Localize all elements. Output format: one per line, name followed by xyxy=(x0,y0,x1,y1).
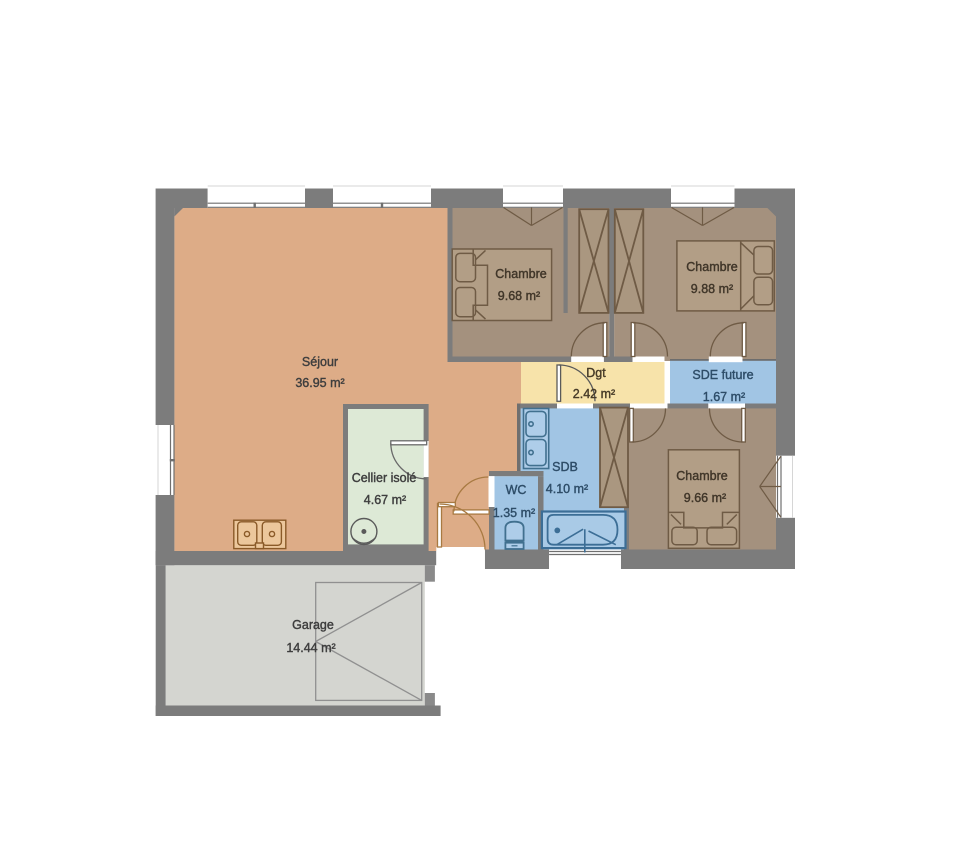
svg-text:4.67 m²: 4.67 m² xyxy=(364,493,406,507)
svg-text:1.35 m²: 1.35 m² xyxy=(493,506,535,520)
svg-text:14.44 m²: 14.44 m² xyxy=(286,641,335,655)
svg-text:SDE future: SDE future xyxy=(692,368,753,382)
svg-text:1.67 m²: 1.67 m² xyxy=(703,390,745,404)
svg-text:Cellier isolé: Cellier isolé xyxy=(352,471,417,485)
svg-text:WC: WC xyxy=(506,483,527,497)
svg-text:Chambre: Chambre xyxy=(686,260,737,274)
svg-text:4.10 m²: 4.10 m² xyxy=(546,482,588,496)
svg-text:Chambre: Chambre xyxy=(676,469,727,483)
svg-text:9.88 m²: 9.88 m² xyxy=(691,282,733,296)
svg-text:9.68 m²: 9.68 m² xyxy=(498,289,540,303)
svg-text:Garage: Garage xyxy=(292,618,334,632)
svg-text:Chambre: Chambre xyxy=(495,267,546,281)
svg-text:36.95 m²: 36.95 m² xyxy=(295,376,344,390)
svg-text:Dgt: Dgt xyxy=(586,366,606,380)
svg-text:2.42 m²: 2.42 m² xyxy=(573,387,615,401)
svg-text:9.66 m²: 9.66 m² xyxy=(684,491,726,505)
svg-text:Séjour: Séjour xyxy=(302,355,338,369)
svg-text:SDB: SDB xyxy=(552,460,578,474)
